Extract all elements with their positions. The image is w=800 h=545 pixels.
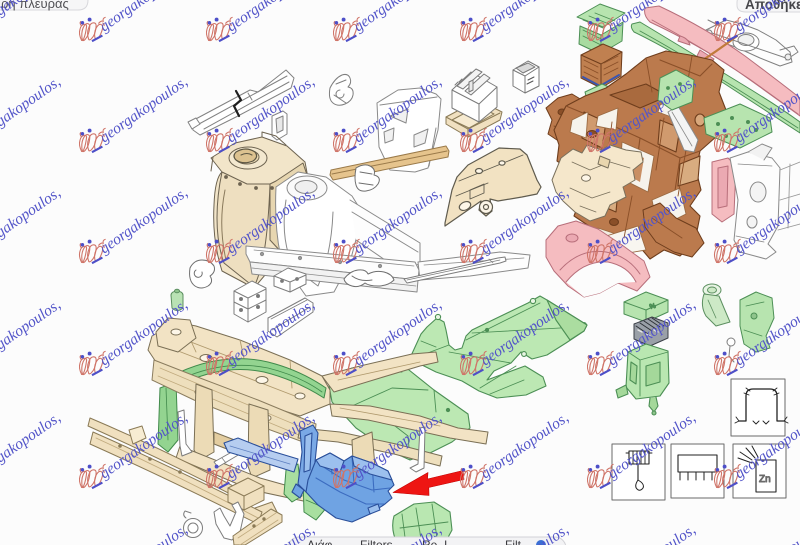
svg-text:Filters: Filters xyxy=(360,538,393,545)
svg-text:Zn: Zn xyxy=(759,474,771,485)
svg-text:Filt: Filt xyxy=(505,538,522,545)
